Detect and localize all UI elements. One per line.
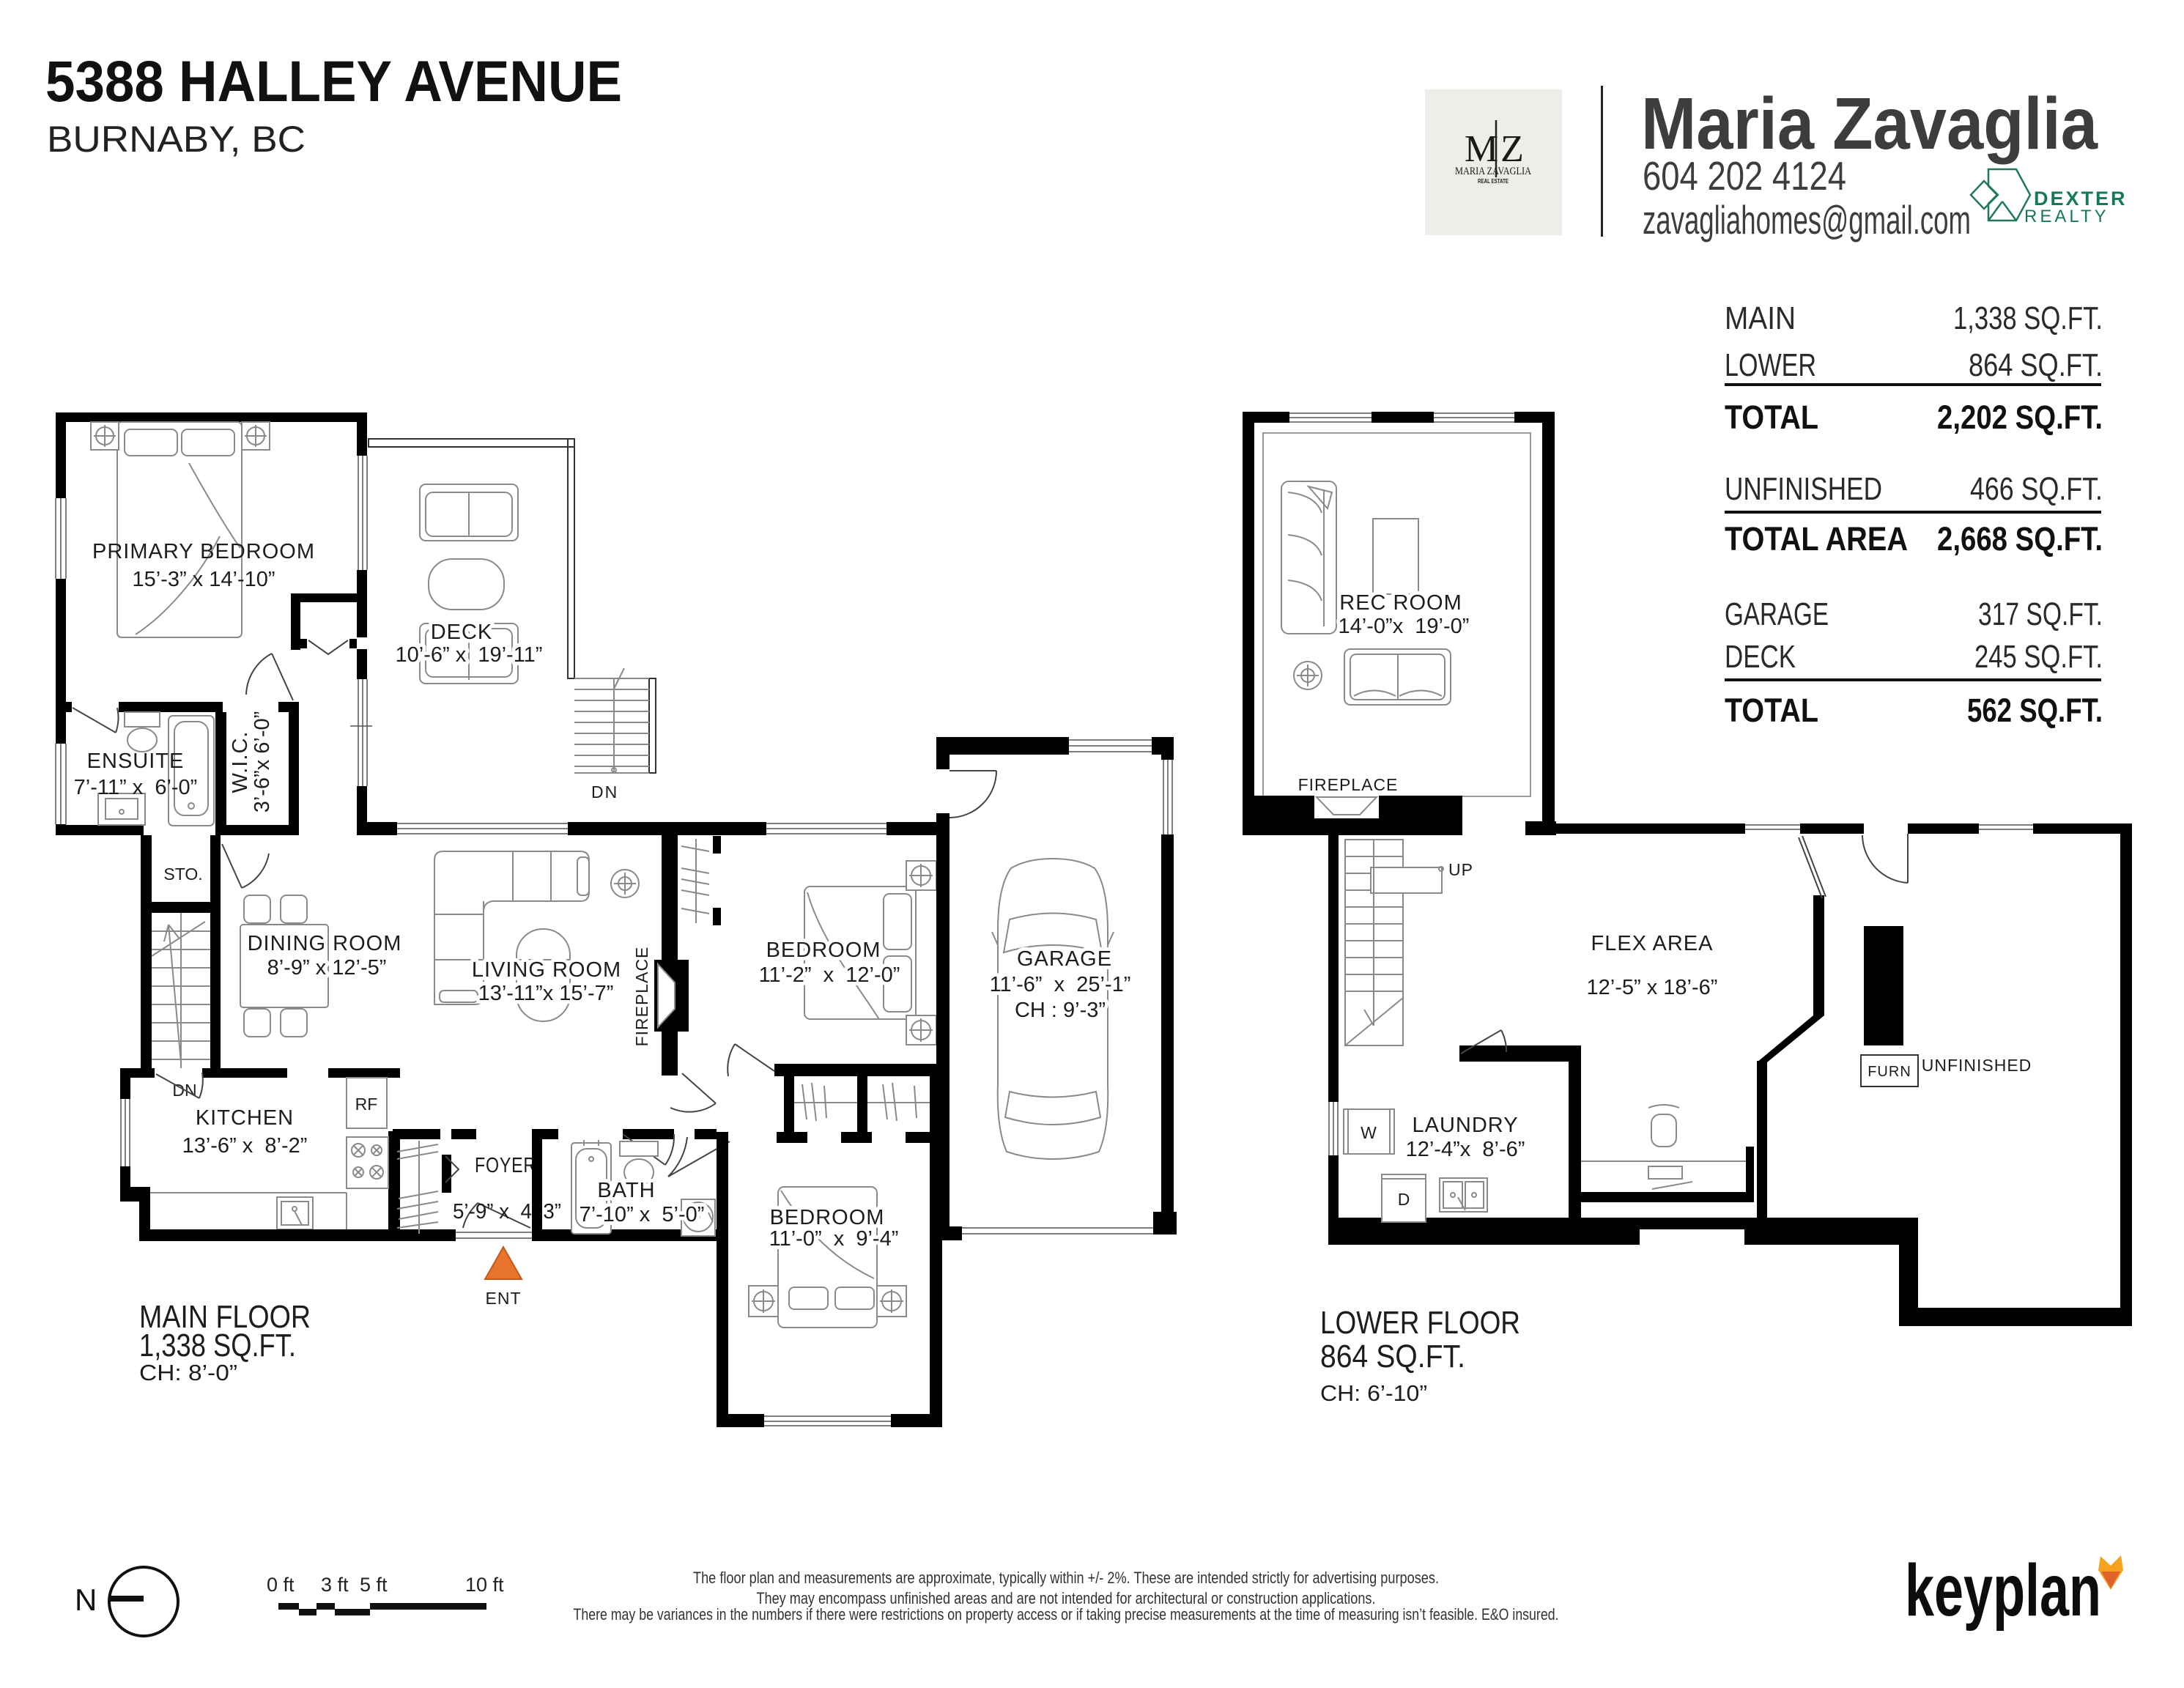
svg-text:12’-4”x 8’-6”: 12’-4”x 8’-6” xyxy=(1406,1138,1525,1161)
svg-text:CH: 8’-0”: CH: 8’-0” xyxy=(139,1360,237,1385)
svg-text:5388 HALLEY AVENUE: 5388 HALLEY AVENUE xyxy=(45,48,622,114)
svg-text:7’-10” x 5’-0”: 7’-10” x 5’-0” xyxy=(580,1203,705,1226)
svg-text:2,202 SQ.FT.: 2,202 SQ.FT. xyxy=(1937,399,2103,436)
svg-text:FIREPLACE: FIREPLACE xyxy=(1298,775,1399,794)
svg-text:5’-9” x 4’-3”: 5’-9” x 4’-3” xyxy=(453,1200,561,1224)
svg-text:2,668 SQ.FT.: 2,668 SQ.FT. xyxy=(1937,520,2103,558)
svg-text:3 ft: 3 ft xyxy=(321,1574,349,1596)
svg-text:N: N xyxy=(75,1582,97,1617)
svg-text:1,338 SQ.FT.: 1,338 SQ.FT. xyxy=(1953,300,2103,336)
svg-text:MARIA ZAVAGLIA: MARIA ZAVAGLIA xyxy=(1455,166,1531,177)
svg-text:zavagliahomes@gmail.com: zavagliahomes@gmail.com xyxy=(1643,197,1971,243)
svg-text:12’-5” x 18’-6”: 12’-5” x 18’-6” xyxy=(1587,976,1718,999)
svg-text:5 ft: 5 ft xyxy=(360,1574,388,1596)
svg-text:DECK: DECK xyxy=(431,621,493,644)
svg-text:REALTY: REALTY xyxy=(2024,207,2109,226)
svg-text:REAL ESTATE: REAL ESTATE xyxy=(1478,178,1509,185)
svg-text:864 SQ.FT.: 864 SQ.FT. xyxy=(1320,1339,1465,1374)
svg-text:RF: RF xyxy=(355,1095,378,1114)
svg-text:13’-11”x 15’-7”: 13’-11”x 15’-7” xyxy=(478,982,614,1005)
svg-text:DN: DN xyxy=(591,782,618,802)
svg-text:TOTAL AREA: TOTAL AREA xyxy=(1725,520,1908,558)
svg-text:UP: UP xyxy=(1448,860,1473,879)
svg-text:D: D xyxy=(1398,1190,1410,1209)
svg-text:Z: Z xyxy=(1500,128,1524,170)
svg-text:11’-0” x 9’-4”: 11’-0” x 9’-4” xyxy=(769,1227,899,1251)
svg-text:The floor plan and measurement: The floor plan and measurements are appr… xyxy=(693,1569,1439,1587)
svg-text:BATH: BATH xyxy=(597,1179,655,1202)
svg-text:604 202 4124: 604 202 4124 xyxy=(1643,153,1846,199)
svg-text:FOYER: FOYER xyxy=(475,1154,536,1177)
svg-text:FLEX AREA: FLEX AREA xyxy=(1591,932,1714,955)
svg-text:BURNABY, BC: BURNABY, BC xyxy=(47,119,306,160)
svg-text:ENT: ENT xyxy=(486,1289,522,1308)
svg-text:DECK: DECK xyxy=(1725,639,1796,675)
svg-text:3’-6”x 6’-0”: 3’-6”x 6’-0” xyxy=(251,711,274,813)
svg-text:562 SQ.FT.: 562 SQ.FT. xyxy=(1967,692,2103,729)
svg-text:LOWER: LOWER xyxy=(1725,347,1816,383)
svg-text:W.I.C.: W.I.C. xyxy=(229,731,252,793)
svg-text:UNFINISHED: UNFINISHED xyxy=(1922,1056,2032,1075)
svg-text:11’-6” x 25’-1”: 11’-6” x 25’-1” xyxy=(990,973,1131,996)
svg-text:13’-6” x 8’-2”: 13’-6” x 8’-2” xyxy=(182,1134,308,1158)
svg-text:1,338 SQ.FT.: 1,338 SQ.FT. xyxy=(139,1328,296,1363)
svg-text:10 ft: 10 ft xyxy=(465,1574,504,1596)
svg-text:CH: 6’-10”: CH: 6’-10” xyxy=(1320,1380,1427,1406)
svg-text:PRIMARY BEDROOM: PRIMARY BEDROOM xyxy=(92,540,315,563)
svg-text:GARAGE: GARAGE xyxy=(1017,947,1112,971)
svg-text:CH : 9’-3”: CH : 9’-3” xyxy=(1015,999,1106,1022)
svg-text:466 SQ.FT.: 466 SQ.FT. xyxy=(1970,471,2103,507)
svg-text:keyplan: keyplan xyxy=(1905,1550,2101,1632)
svg-text:FIREPLACE: FIREPLACE xyxy=(632,947,651,1047)
svg-text:TOTAL: TOTAL xyxy=(1725,399,1818,436)
svg-text:REC ROOM: REC ROOM xyxy=(1339,591,1462,615)
svg-text:LIVING ROOM: LIVING ROOM xyxy=(472,958,621,982)
svg-text:ENSUITE: ENSUITE xyxy=(87,749,185,773)
svg-text:7’-11” x 6’-0”: 7’-11” x 6’-0” xyxy=(74,776,198,799)
svg-text:M: M xyxy=(1465,128,1498,170)
svg-text:TOTAL: TOTAL xyxy=(1725,692,1818,729)
svg-text:0 ft: 0 ft xyxy=(267,1574,295,1596)
svg-text:245 SQ.FT.: 245 SQ.FT. xyxy=(1974,639,2103,675)
svg-text:W: W xyxy=(1361,1123,1377,1142)
svg-text:11’-2” x 12’-0”: 11’-2” x 12’-0” xyxy=(759,963,900,987)
svg-text:317 SQ.FT.: 317 SQ.FT. xyxy=(1978,596,2103,632)
svg-text:STO.: STO. xyxy=(163,865,202,884)
svg-text:There may be variances in the: There may be variances in the numbers if… xyxy=(574,1605,1559,1624)
svg-text:864 SQ.FT.: 864 SQ.FT. xyxy=(1969,347,2103,383)
svg-text:FURN: FURN xyxy=(1867,1064,1911,1080)
svg-text:KITCHEN: KITCHEN xyxy=(196,1106,294,1130)
svg-text:LOWER FLOOR: LOWER FLOOR xyxy=(1320,1305,1520,1341)
svg-text:8’-9” x 12’-5”: 8’-9” x 12’-5” xyxy=(267,956,387,980)
svg-text:15’-3” x 14’-10”: 15’-3” x 14’-10” xyxy=(132,568,275,591)
svg-text:BEDROOM: BEDROOM xyxy=(766,939,881,962)
svg-text:GARAGE: GARAGE xyxy=(1725,596,1829,632)
svg-text:DINING ROOM: DINING ROOM xyxy=(248,932,402,955)
svg-text:LAUNDRY: LAUNDRY xyxy=(1412,1114,1518,1137)
svg-text:14’-0”x 19’-0”: 14’-0”x 19’-0” xyxy=(1339,615,1470,638)
svg-text:UNFINISHED: UNFINISHED xyxy=(1725,471,1882,507)
svg-text:10’-6” x 19’-11”: 10’-6” x 19’-11” xyxy=(396,643,543,667)
svg-text:BEDROOM: BEDROOM xyxy=(770,1206,885,1229)
svg-text:MAIN: MAIN xyxy=(1725,300,1796,336)
